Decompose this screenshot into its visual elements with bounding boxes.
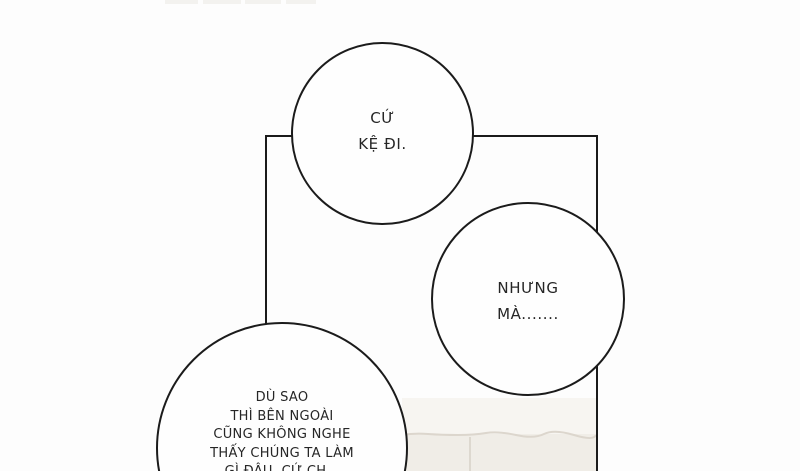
bubble-text: CỨ KỆ ĐI. [293,44,472,223]
bubble-text: DÙ SAO THÌ BÊN NGOÀI CŨNG KHÔNG NGHE THẤ… [158,324,406,471]
couch-outline-art [402,398,596,471]
bubble-line: THẤY CHÚNG TA LÀM [210,445,354,464]
bubble-text: NHƯNG MÀ....... [433,204,623,394]
edge-mark [286,0,316,4]
bubble-line: NHƯNG [497,275,558,301]
bubble-line: MÀ....... [497,301,559,327]
bubble-line: THÌ BÊN NGOÀI [230,408,333,427]
comic-page: CỨ KỆ ĐI. NHƯNG MÀ....... DÙ SAO THÌ BÊN… [0,0,800,471]
bubble-line: CỨ [370,105,395,131]
bubble-line: GÌ ĐÂU, CỨ CH... [225,463,340,471]
bubble-line: KỆ ĐI. [358,131,407,157]
speech-bubble-top: CỨ KỆ ĐI. [291,42,474,225]
edge-mark [203,0,241,4]
speech-bubble-bottom-left: DÙ SAO THÌ BÊN NGOÀI CŨNG KHÔNG NGHE THẤ… [156,322,408,471]
edge-mark [245,0,281,4]
edge-mark [165,0,198,4]
speech-bubble-right: NHƯNG MÀ....... [431,202,625,396]
bubble-line: CŨNG KHÔNG NGHE [213,426,350,445]
previous-panel-edge [0,0,800,4]
bubble-line: DÙ SAO [256,389,309,408]
